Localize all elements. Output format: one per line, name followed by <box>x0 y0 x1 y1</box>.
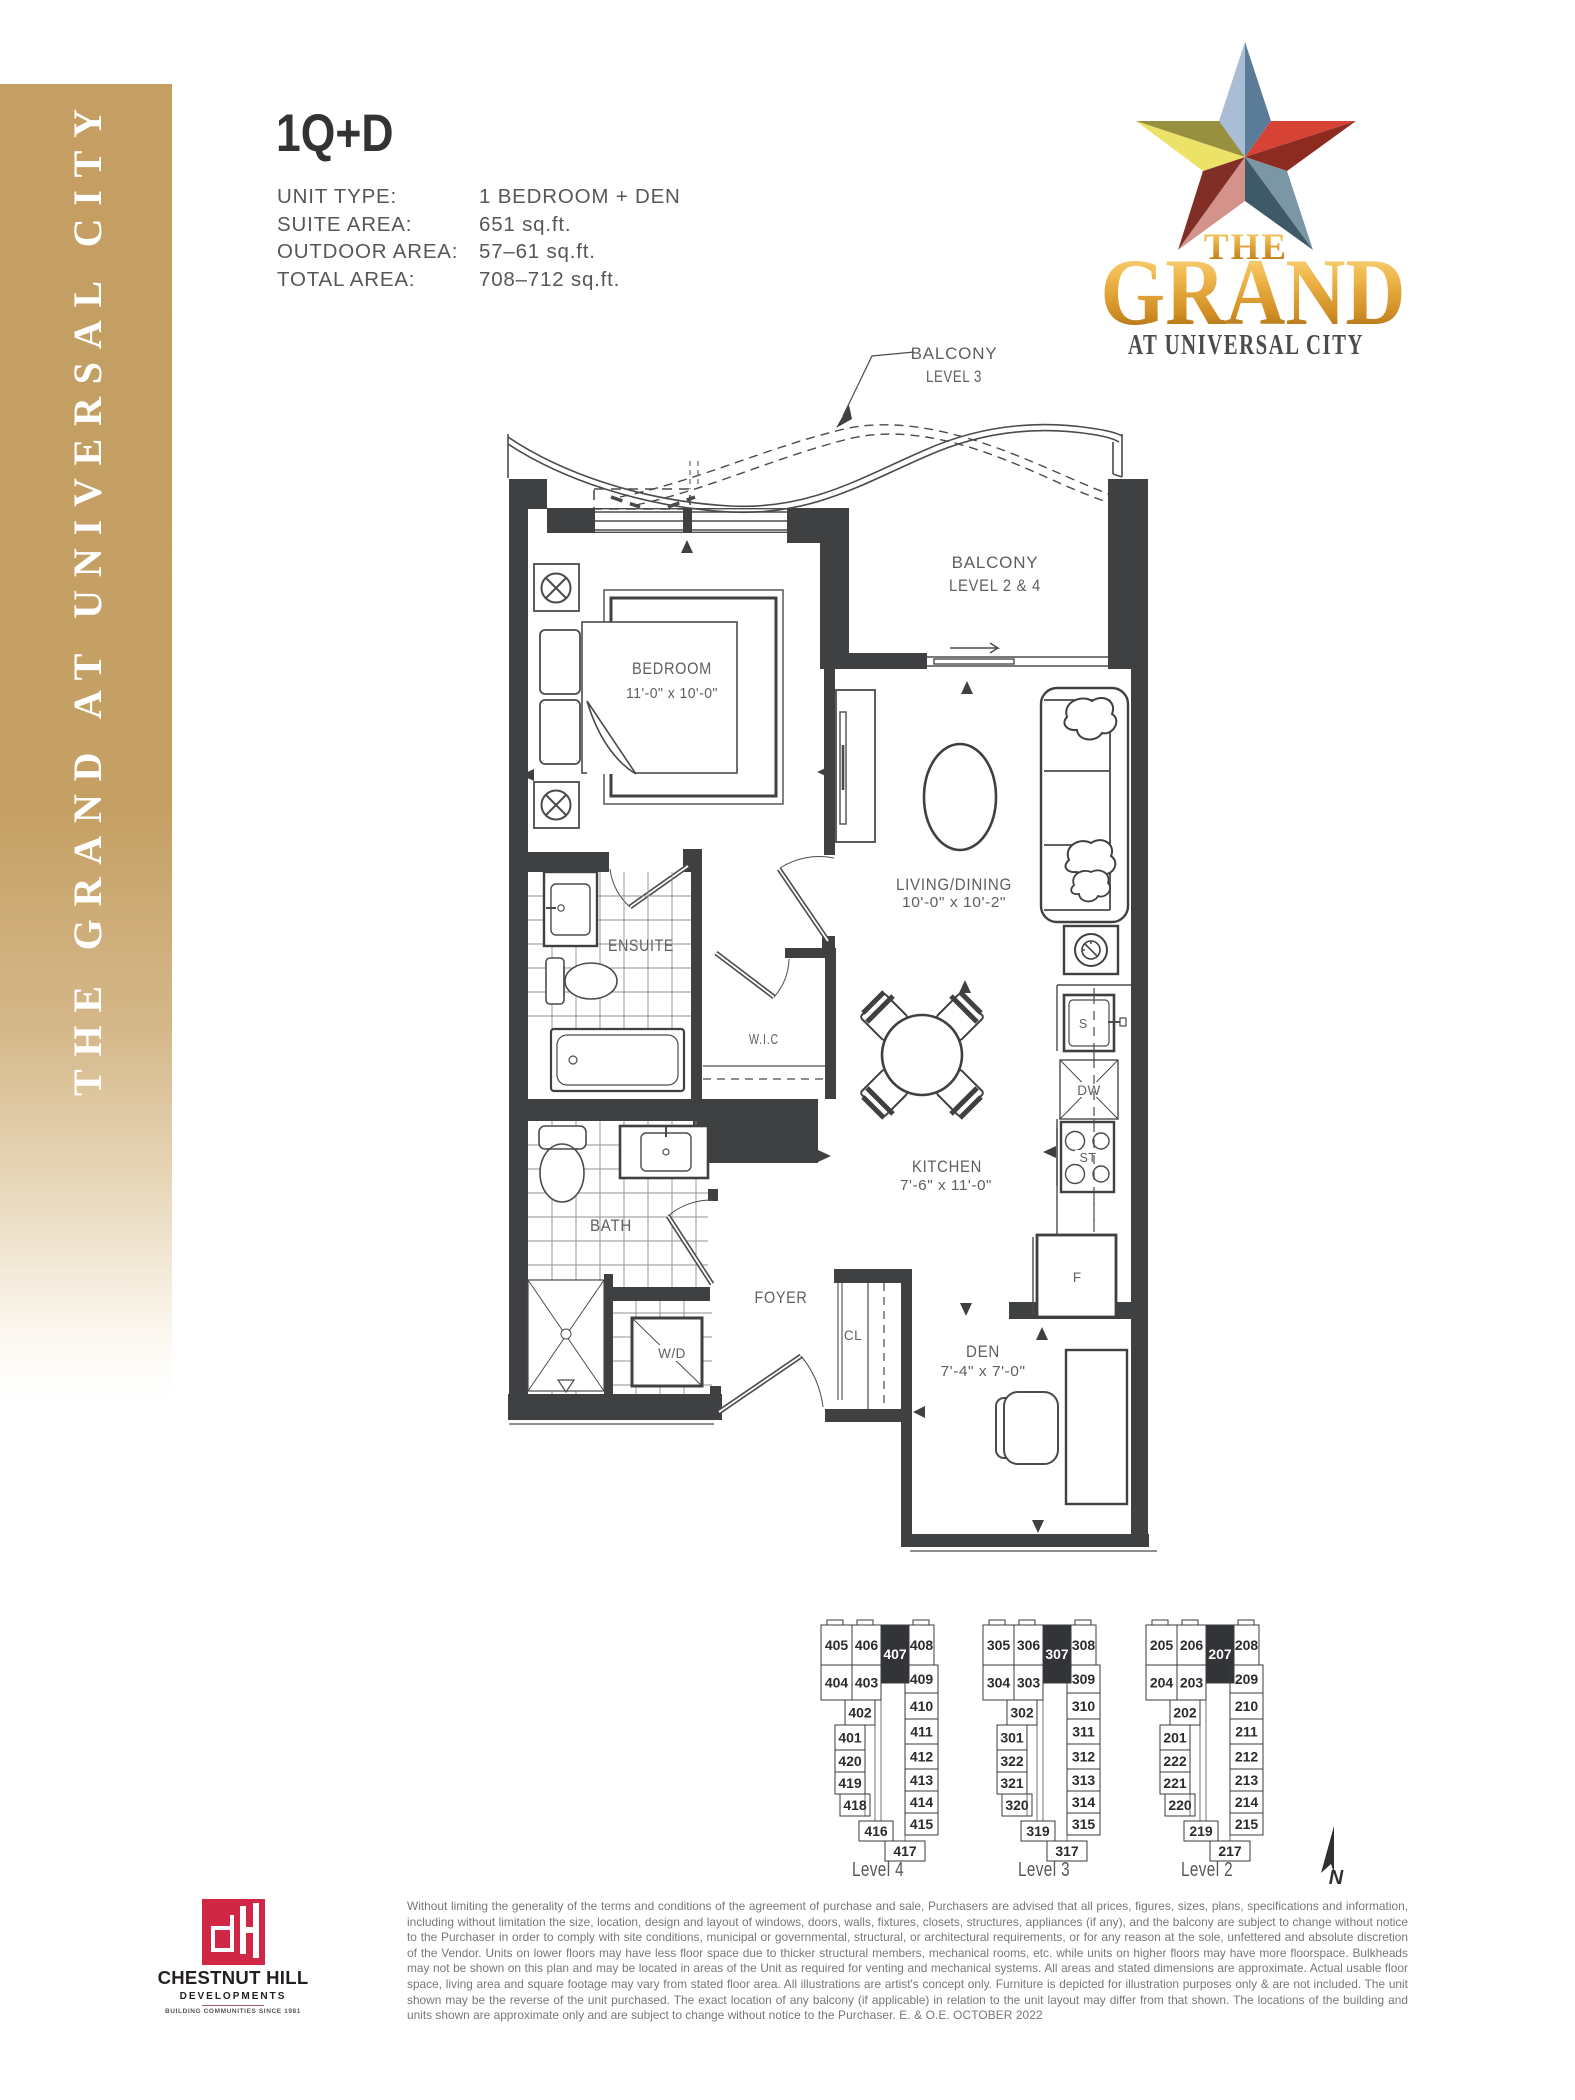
svg-text:W.I.C: W.I.C <box>749 1031 779 1048</box>
svg-text:401: 401 <box>838 1730 862 1746</box>
svg-text:320: 320 <box>1005 1797 1029 1813</box>
svg-text:FOYER: FOYER <box>755 1288 808 1307</box>
svg-text:202: 202 <box>1173 1705 1197 1721</box>
svg-text:211: 211 <box>1235 1724 1258 1740</box>
svg-text:309: 309 <box>1072 1671 1096 1687</box>
svg-text:Level 4: Level 4 <box>852 1859 904 1881</box>
svg-text:204: 204 <box>1150 1675 1174 1691</box>
svg-text:303: 303 <box>1017 1675 1041 1691</box>
svg-text:10'-0" x 10'-2": 10'-0" x 10'-2" <box>902 894 1006 911</box>
svg-text:217: 217 <box>1218 1843 1242 1859</box>
svg-text:406: 406 <box>855 1637 879 1653</box>
svg-text:410: 410 <box>910 1698 934 1714</box>
svg-text:Level 3: Level 3 <box>1018 1859 1070 1881</box>
svg-text:BATH: BATH <box>590 1216 632 1235</box>
svg-text:214: 214 <box>1235 1794 1259 1810</box>
svg-text:313: 313 <box>1072 1772 1096 1788</box>
svg-text:CHESTNUT HILL: CHESTNUT HILL <box>158 1967 309 1988</box>
svg-text:AT UNIVERSAL CITY: AT UNIVERSAL CITY <box>1128 330 1364 361</box>
svg-text:BUILDING COMMUNITIES SINCE 198: BUILDING COMMUNITIES SINCE 1981 <box>165 2008 301 2015</box>
svg-text:N: N <box>1329 1867 1344 1889</box>
svg-text:310: 310 <box>1072 1698 1096 1714</box>
svg-text:213: 213 <box>1235 1772 1259 1788</box>
svg-text:Level 2: Level 2 <box>1181 1859 1233 1881</box>
svg-text:S: S <box>1079 1017 1087 1031</box>
svg-text:BALCONY: BALCONY <box>911 344 998 363</box>
svg-text:205: 205 <box>1150 1637 1174 1653</box>
svg-text:304: 304 <box>987 1675 1011 1691</box>
svg-text:311: 311 <box>1072 1724 1095 1740</box>
svg-text:301: 301 <box>1000 1730 1024 1746</box>
svg-text:305: 305 <box>987 1637 1011 1653</box>
svg-text:405: 405 <box>825 1637 849 1653</box>
svg-text:206: 206 <box>1180 1637 1204 1653</box>
svg-text:312: 312 <box>1072 1749 1096 1765</box>
svg-text:321: 321 <box>1000 1775 1024 1791</box>
svg-text:215: 215 <box>1235 1816 1259 1832</box>
svg-text:BALCONY: BALCONY <box>952 553 1039 572</box>
svg-text:408: 408 <box>910 1637 934 1653</box>
svg-text:LIVING/DINING: LIVING/DINING <box>896 875 1012 894</box>
svg-text:302: 302 <box>1010 1705 1034 1721</box>
svg-text:416: 416 <box>864 1823 888 1839</box>
svg-text:306: 306 <box>1017 1637 1041 1653</box>
svg-text:7'-4" x 7'-0": 7'-4" x 7'-0" <box>941 1363 1026 1380</box>
svg-text:403: 403 <box>855 1675 879 1691</box>
svg-text:BEDROOM: BEDROOM <box>632 659 712 678</box>
svg-text:413: 413 <box>910 1772 934 1788</box>
svg-text:220: 220 <box>1168 1797 1192 1813</box>
svg-text:419: 419 <box>838 1775 862 1791</box>
svg-text:404: 404 <box>825 1675 849 1691</box>
svg-text:409: 409 <box>910 1671 934 1687</box>
svg-text:222: 222 <box>1163 1753 1187 1769</box>
svg-text:210: 210 <box>1235 1698 1259 1714</box>
svg-text:DEN: DEN <box>966 1342 1000 1361</box>
svg-text:221: 221 <box>1163 1775 1187 1791</box>
svg-text:219: 219 <box>1189 1823 1213 1839</box>
svg-text:414: 414 <box>910 1794 934 1810</box>
svg-text:308: 308 <box>1072 1637 1096 1653</box>
svg-text:7'-6" x 11'-0": 7'-6" x 11'-0" <box>900 1177 992 1194</box>
svg-text:407: 407 <box>883 1646 907 1662</box>
svg-text:417: 417 <box>893 1843 917 1859</box>
svg-text:LEVEL 2 & 4: LEVEL 2 & 4 <box>949 576 1041 595</box>
svg-text:418: 418 <box>843 1797 867 1813</box>
svg-text:DW: DW <box>1077 1083 1101 1098</box>
svg-text:W/D: W/D <box>658 1346 686 1361</box>
svg-text:208: 208 <box>1235 1637 1259 1653</box>
svg-text:307: 307 <box>1045 1646 1069 1662</box>
svg-text:203: 203 <box>1180 1675 1204 1691</box>
svg-text:402: 402 <box>848 1705 872 1721</box>
svg-text:319: 319 <box>1026 1823 1050 1839</box>
svg-text:322: 322 <box>1000 1753 1024 1769</box>
svg-text:412: 412 <box>910 1749 934 1765</box>
svg-text:209: 209 <box>1235 1671 1259 1687</box>
svg-text:415: 415 <box>910 1816 934 1832</box>
svg-text:KITCHEN: KITCHEN <box>912 1157 982 1176</box>
svg-text:317: 317 <box>1055 1843 1079 1859</box>
svg-text:201: 201 <box>1163 1730 1187 1746</box>
svg-text:F: F <box>1073 1270 1081 1285</box>
svg-text:411: 411 <box>910 1724 933 1740</box>
svg-text:314: 314 <box>1072 1794 1096 1810</box>
svg-text:ENSUITE: ENSUITE <box>608 936 674 955</box>
svg-text:420: 420 <box>838 1753 862 1769</box>
svg-text:LEVEL 3: LEVEL 3 <box>926 367 982 386</box>
svg-text:11'-0" x 10'-0": 11'-0" x 10'-0" <box>626 685 718 702</box>
svg-text:207: 207 <box>1208 1646 1232 1662</box>
svg-text:DEVELOPMENTS: DEVELOPMENTS <box>180 1991 287 2002</box>
svg-text:CL: CL <box>844 1328 862 1343</box>
svg-text:315: 315 <box>1072 1816 1096 1832</box>
svg-text:212: 212 <box>1235 1749 1259 1765</box>
